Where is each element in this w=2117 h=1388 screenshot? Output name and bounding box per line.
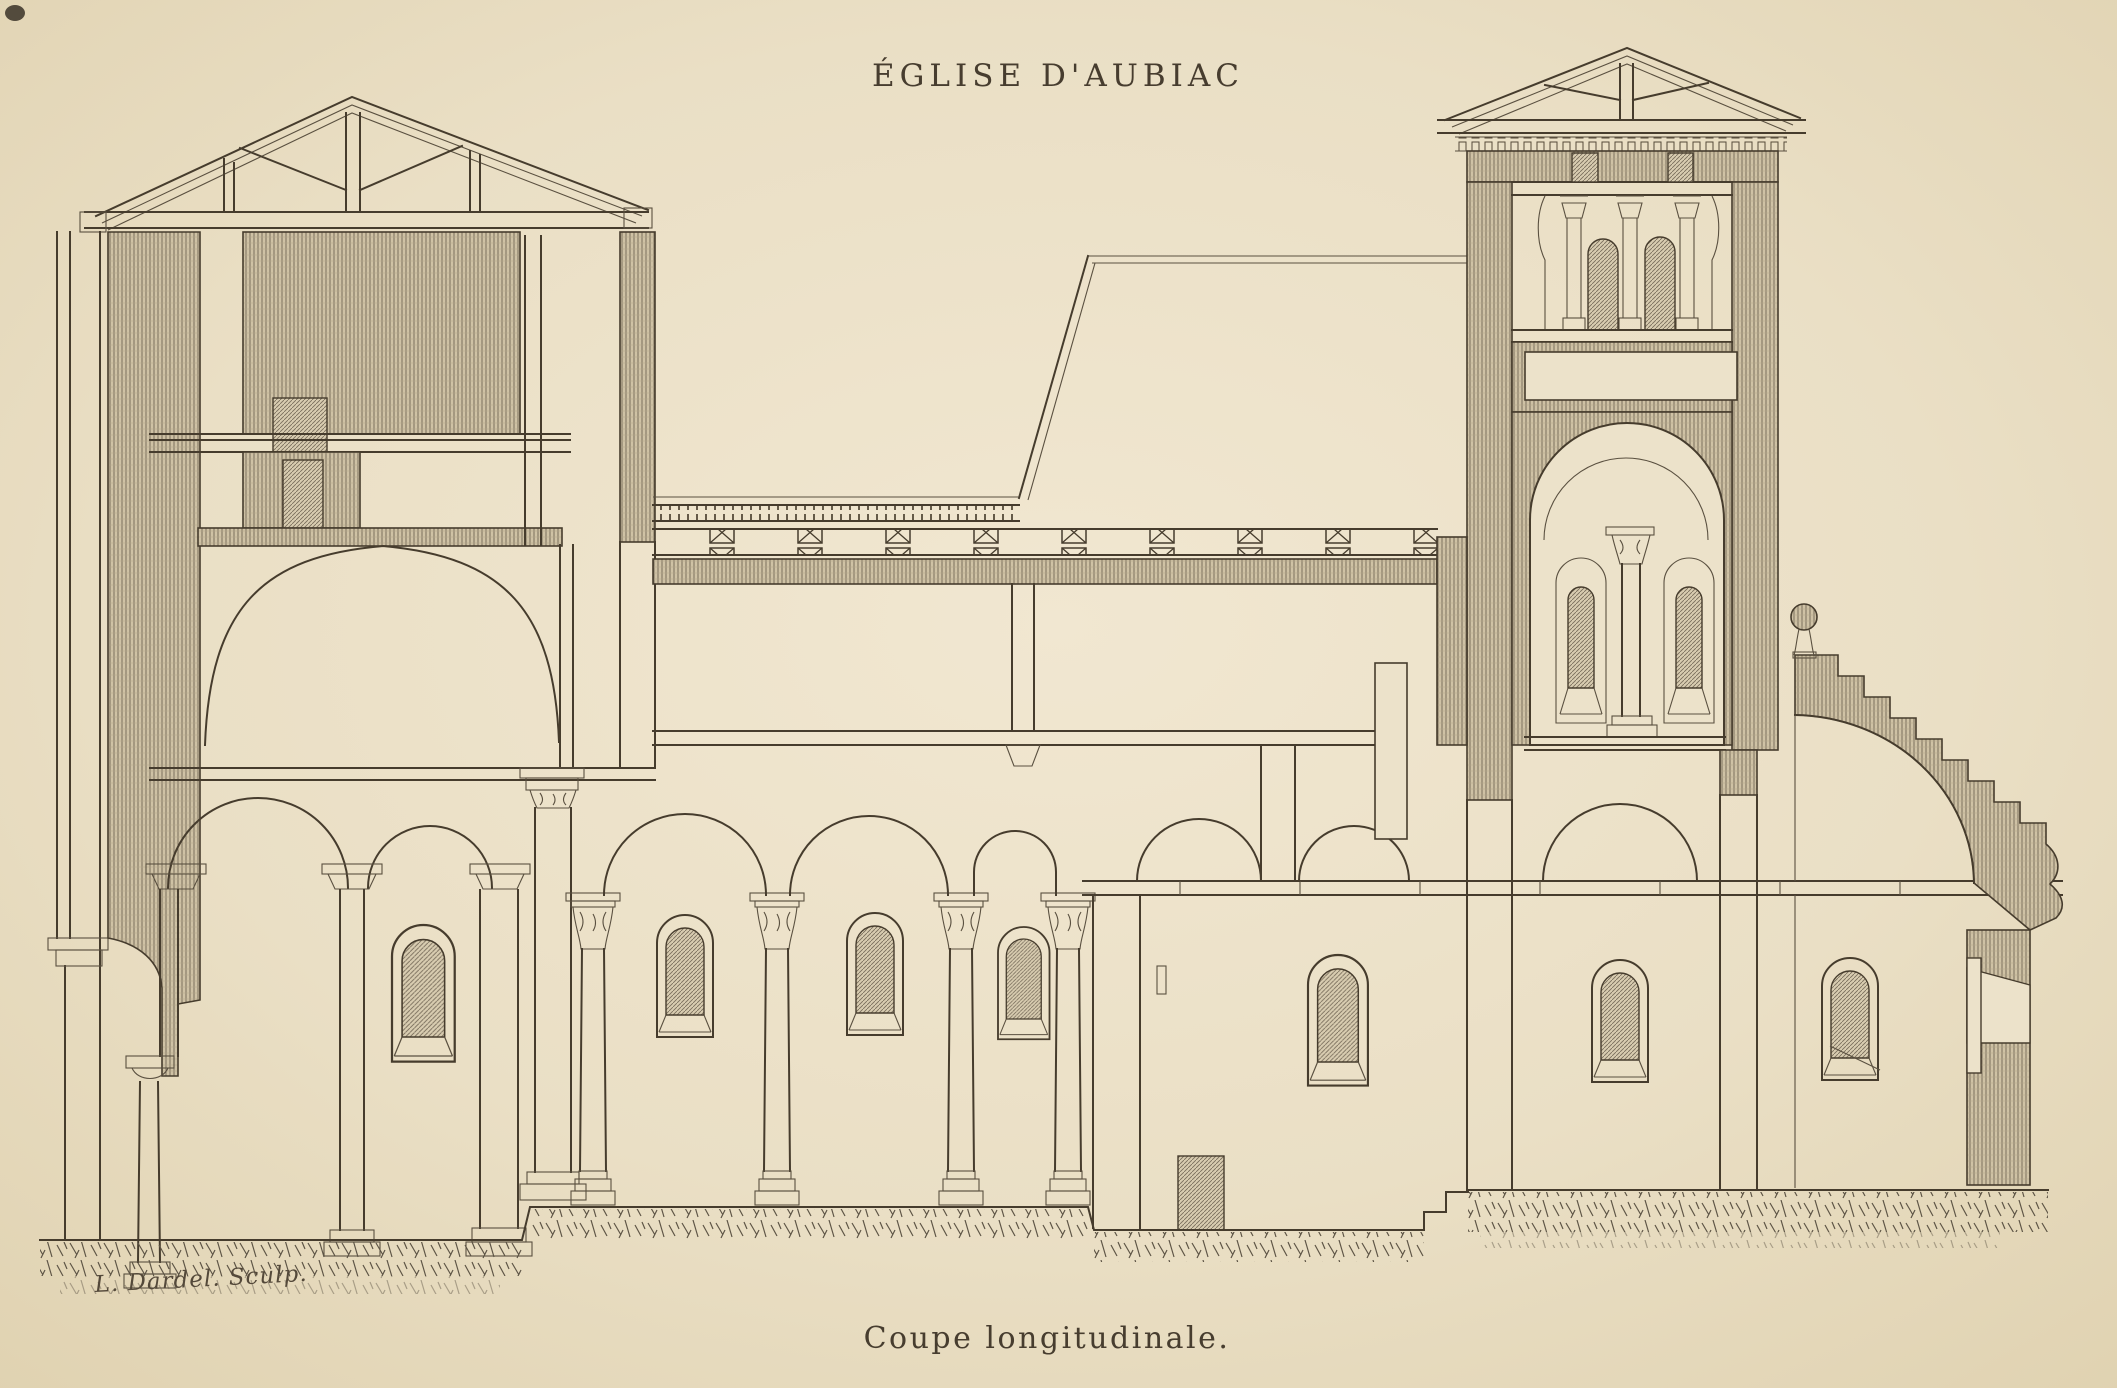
plate-title: ÉGLISE D'AUBIAC	[872, 56, 1244, 94]
engraving-plate: ÉGLISE D'AUBIAC Coupe longitudinale. L. …	[0, 0, 2117, 1388]
belfry-opening	[1645, 237, 1675, 330]
plate-caption: Coupe longitudinale.	[864, 1321, 1231, 1356]
grass-hatch	[1468, 1192, 2048, 1232]
tower-great-arch	[1512, 412, 1732, 750]
church-section-drawing: ÉGLISE D'AUBIAC Coupe longitudinale. L. …	[0, 0, 2117, 1388]
right-wall-hatch	[620, 232, 655, 542]
grass-hatch	[1094, 1232, 1424, 1262]
tower-left-wall	[1467, 182, 1512, 800]
tower-panel	[1525, 352, 1737, 400]
doorway-hatch	[1178, 1156, 1224, 1230]
ink-smudge	[5, 5, 25, 21]
arch-masonry-band	[198, 528, 562, 546]
x-frieze	[653, 529, 1437, 555]
tower-buttress	[1437, 537, 1467, 745]
belfry-opening	[1588, 239, 1618, 330]
tower-pilaster-face	[1375, 663, 1407, 839]
grass-hatch	[530, 1209, 1088, 1239]
cornice-hatch-band	[653, 559, 1437, 584]
tower-right-wall	[1732, 182, 1778, 750]
tower-top-band	[1467, 151, 1778, 182]
grass-hatch-sparse	[1480, 1232, 2000, 1248]
east-pilaster	[1967, 958, 1981, 1073]
eave-corbel-row	[1455, 137, 1787, 151]
mid-door-slot	[283, 460, 323, 528]
